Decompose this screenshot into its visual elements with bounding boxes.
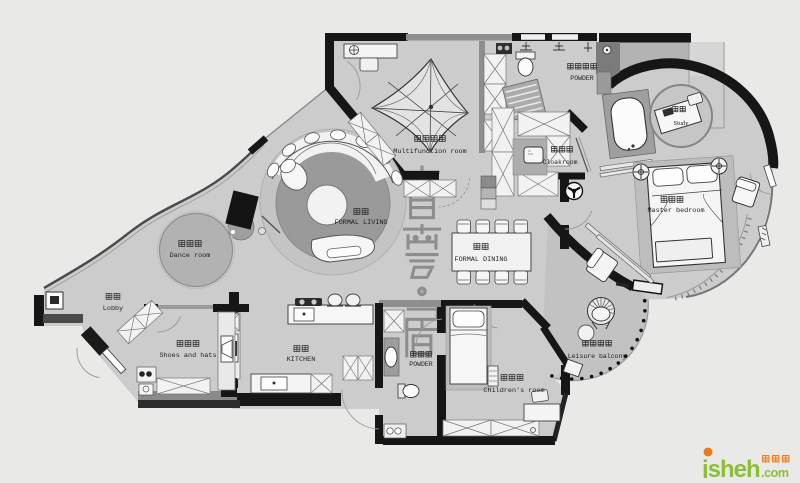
svg-text:Children's room: Children's room <box>483 387 544 395</box>
svg-text:.com: .com <box>761 466 789 478</box>
svg-text:POWDER: POWDER <box>570 75 594 82</box>
svg-text:FORMAL DINING: FORMAL DINING <box>454 256 507 264</box>
svg-text:KITCHEN: KITCHEN <box>287 356 316 364</box>
svg-text:FORMAL LIVING: FORMAL LIVING <box>334 219 387 227</box>
svg-text:jsheh: jsheh <box>701 456 760 478</box>
svg-text:POWDER: POWDER <box>409 361 433 368</box>
svg-text:Study: Study <box>674 120 690 127</box>
svg-text:Multifunction room: Multifunction room <box>393 148 466 156</box>
svg-text:Dance room: Dance room <box>170 252 211 260</box>
svg-text:Leisure balcony: Leisure balcony <box>568 353 627 360</box>
svg-text:Master bedroom: Master bedroom <box>647 207 704 215</box>
svg-text:Lobby: Lobby <box>103 305 123 313</box>
svg-text:Cloakroom: Cloakroom <box>542 159 577 166</box>
svg-text:Shoes and hats: Shoes and hats <box>159 352 216 360</box>
